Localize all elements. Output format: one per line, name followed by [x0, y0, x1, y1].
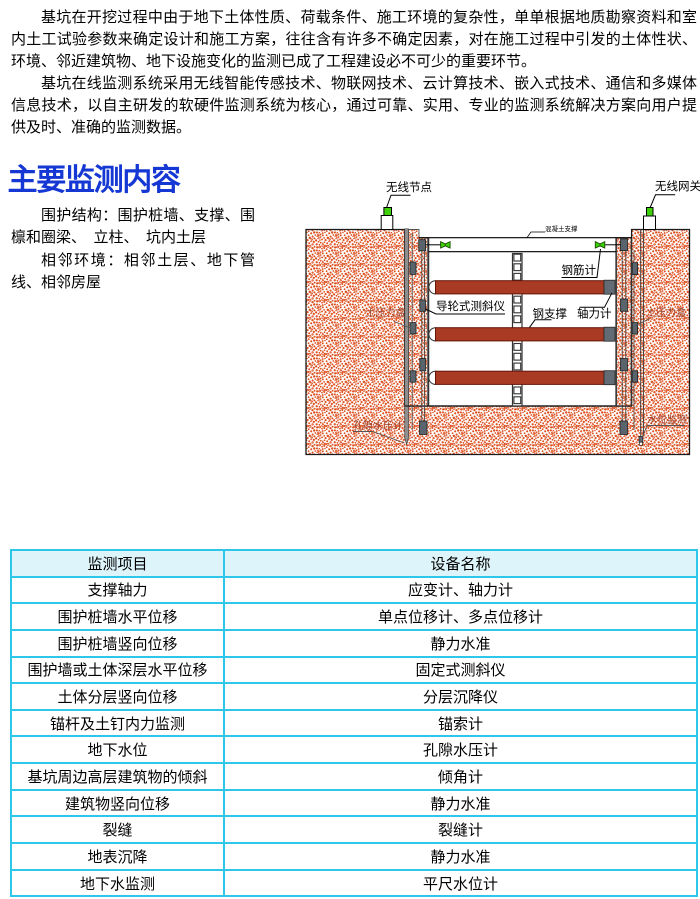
- svg-text:轴力计: 轴力计: [577, 306, 612, 320]
- svg-text:无线节点: 无线节点: [386, 180, 432, 194]
- svg-text:土压力盒: 土压力盒: [646, 306, 686, 319]
- svg-text:无线网关: 无线网关: [655, 179, 700, 193]
- svg-text:混凝土支撑: 混凝土支撑: [545, 224, 578, 233]
- svg-text:孔隙水压计: 孔隙水压计: [353, 419, 403, 432]
- svg-text:钢筋计: 钢筋计: [562, 263, 597, 277]
- svg-text:土压力盒: 土压力盒: [366, 306, 406, 319]
- svg-text:导轮式测斜仪: 导轮式测斜仪: [436, 299, 505, 313]
- svg-text:水位监测: 水位监测: [647, 413, 687, 426]
- svg-text:钢支撑: 钢支撑: [533, 306, 568, 320]
